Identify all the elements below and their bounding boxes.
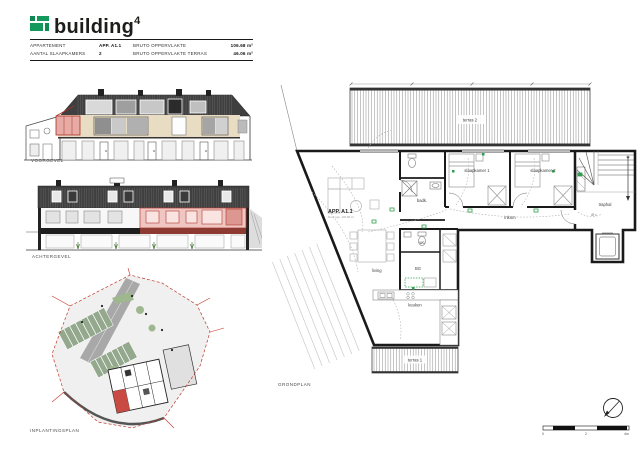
info-value: 106.68 m² — [213, 43, 253, 48]
room-label-slaapkamer-1: slaapkamer 1 — [464, 168, 490, 173]
info-label: BRUTO OPPERVLAKTE — [133, 43, 213, 48]
room-label-traphal: traphal — [599, 202, 612, 207]
room-label-terras-1: terras 1 — [408, 358, 423, 363]
brand-blocks-icon — [30, 16, 49, 32]
voorgevel-label: VOORGEVEL — [31, 158, 64, 163]
brand-name: building4 — [54, 10, 141, 38]
room-label-inkom: inkom — [504, 215, 516, 220]
info-value: 2 — [99, 51, 133, 56]
brand-superscript: 4 — [134, 15, 140, 27]
scale-tick-mid: 2 — [585, 432, 587, 436]
room-terras-2: terras 2 — [350, 88, 590, 146]
room-terras-1: terras 1 — [372, 347, 458, 373]
room-label-terras-2: terras 2 — [463, 118, 478, 123]
inplantingsplan-label: INPLANTINGSPLAN — [30, 428, 79, 433]
info-label: APPARTEMENT — [30, 43, 99, 48]
scale-tick-end: 4m — [624, 432, 629, 436]
info-label: BRUTO OPPERVLAKTE TERRAS — [133, 51, 213, 56]
traphal-marks: Ø × — [591, 213, 597, 217]
scale-bar: 0 2 4m — [540, 422, 635, 438]
achtergevel-elevation — [26, 178, 262, 258]
inplantingsplan-drawing — [12, 270, 232, 435]
apartment-sub-label: bruto opp. 106.68 m² — [328, 215, 354, 219]
room-label-berging: BG — [415, 266, 421, 271]
scale-tick-0: 0 — [542, 432, 544, 436]
info-label: AANTAL SLAAPKAMERS — [30, 51, 99, 56]
apartment-info-table: APPARTEMENT APP. A1.1 BRUTO OPPERVLAKTE … — [30, 39, 253, 61]
room-label-keuken: keuken — [408, 303, 422, 308]
info-value: 46.06 m² — [213, 51, 253, 56]
drawing-sheet: building4 APPARTEMENT APP. A1.1 BRUTO OP… — [0, 0, 640, 451]
room-label-slaapkamer-2: slaapkamer 2 — [530, 168, 556, 173]
room-label-wc: wc — [419, 240, 424, 245]
grondplan-label: GRONDPLAN — [278, 382, 311, 387]
brand-logo: building4 — [30, 10, 141, 38]
north-arrow-icon — [598, 394, 632, 424]
grondplan-drawing: terras 2 terras 1 — [272, 82, 640, 382]
room-label-badkamer: badk. — [417, 198, 427, 203]
elevator — [596, 233, 619, 259]
info-value: APP. A1.1 — [99, 43, 133, 48]
room-label-living: living — [372, 268, 382, 273]
achtergevel-label: ACHTERGEVEL — [32, 254, 71, 259]
